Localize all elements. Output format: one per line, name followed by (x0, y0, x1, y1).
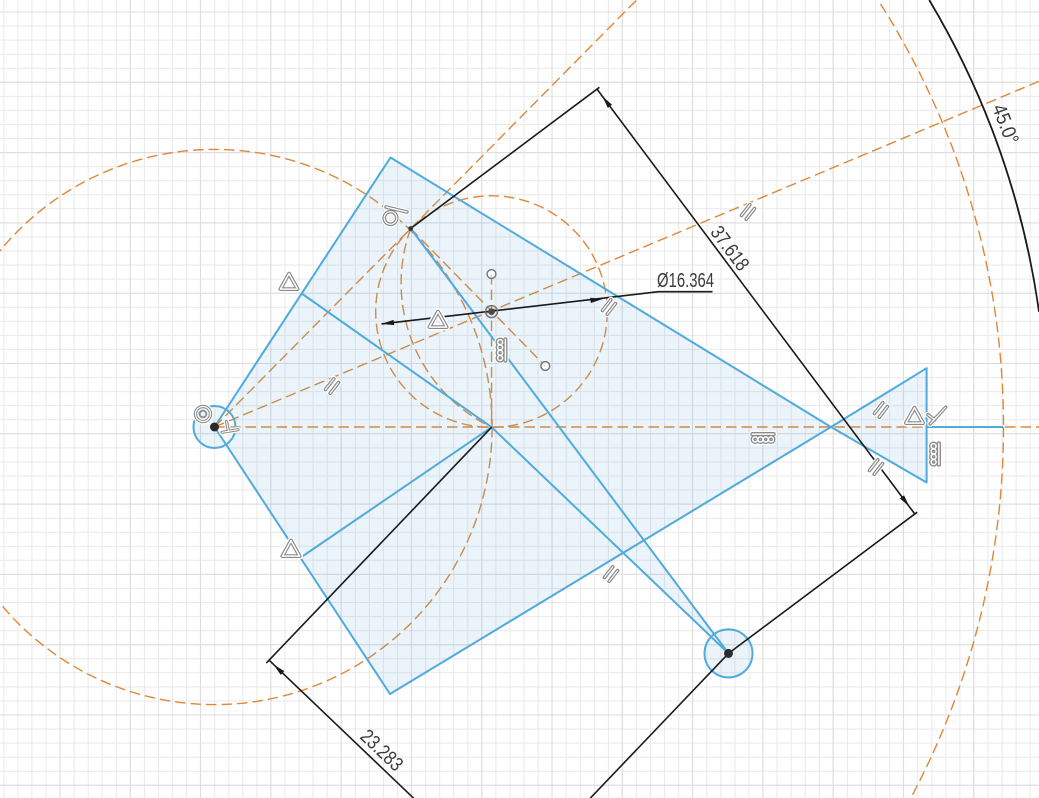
svg-text:Ø16.364: Ø16.364 (657, 270, 714, 292)
